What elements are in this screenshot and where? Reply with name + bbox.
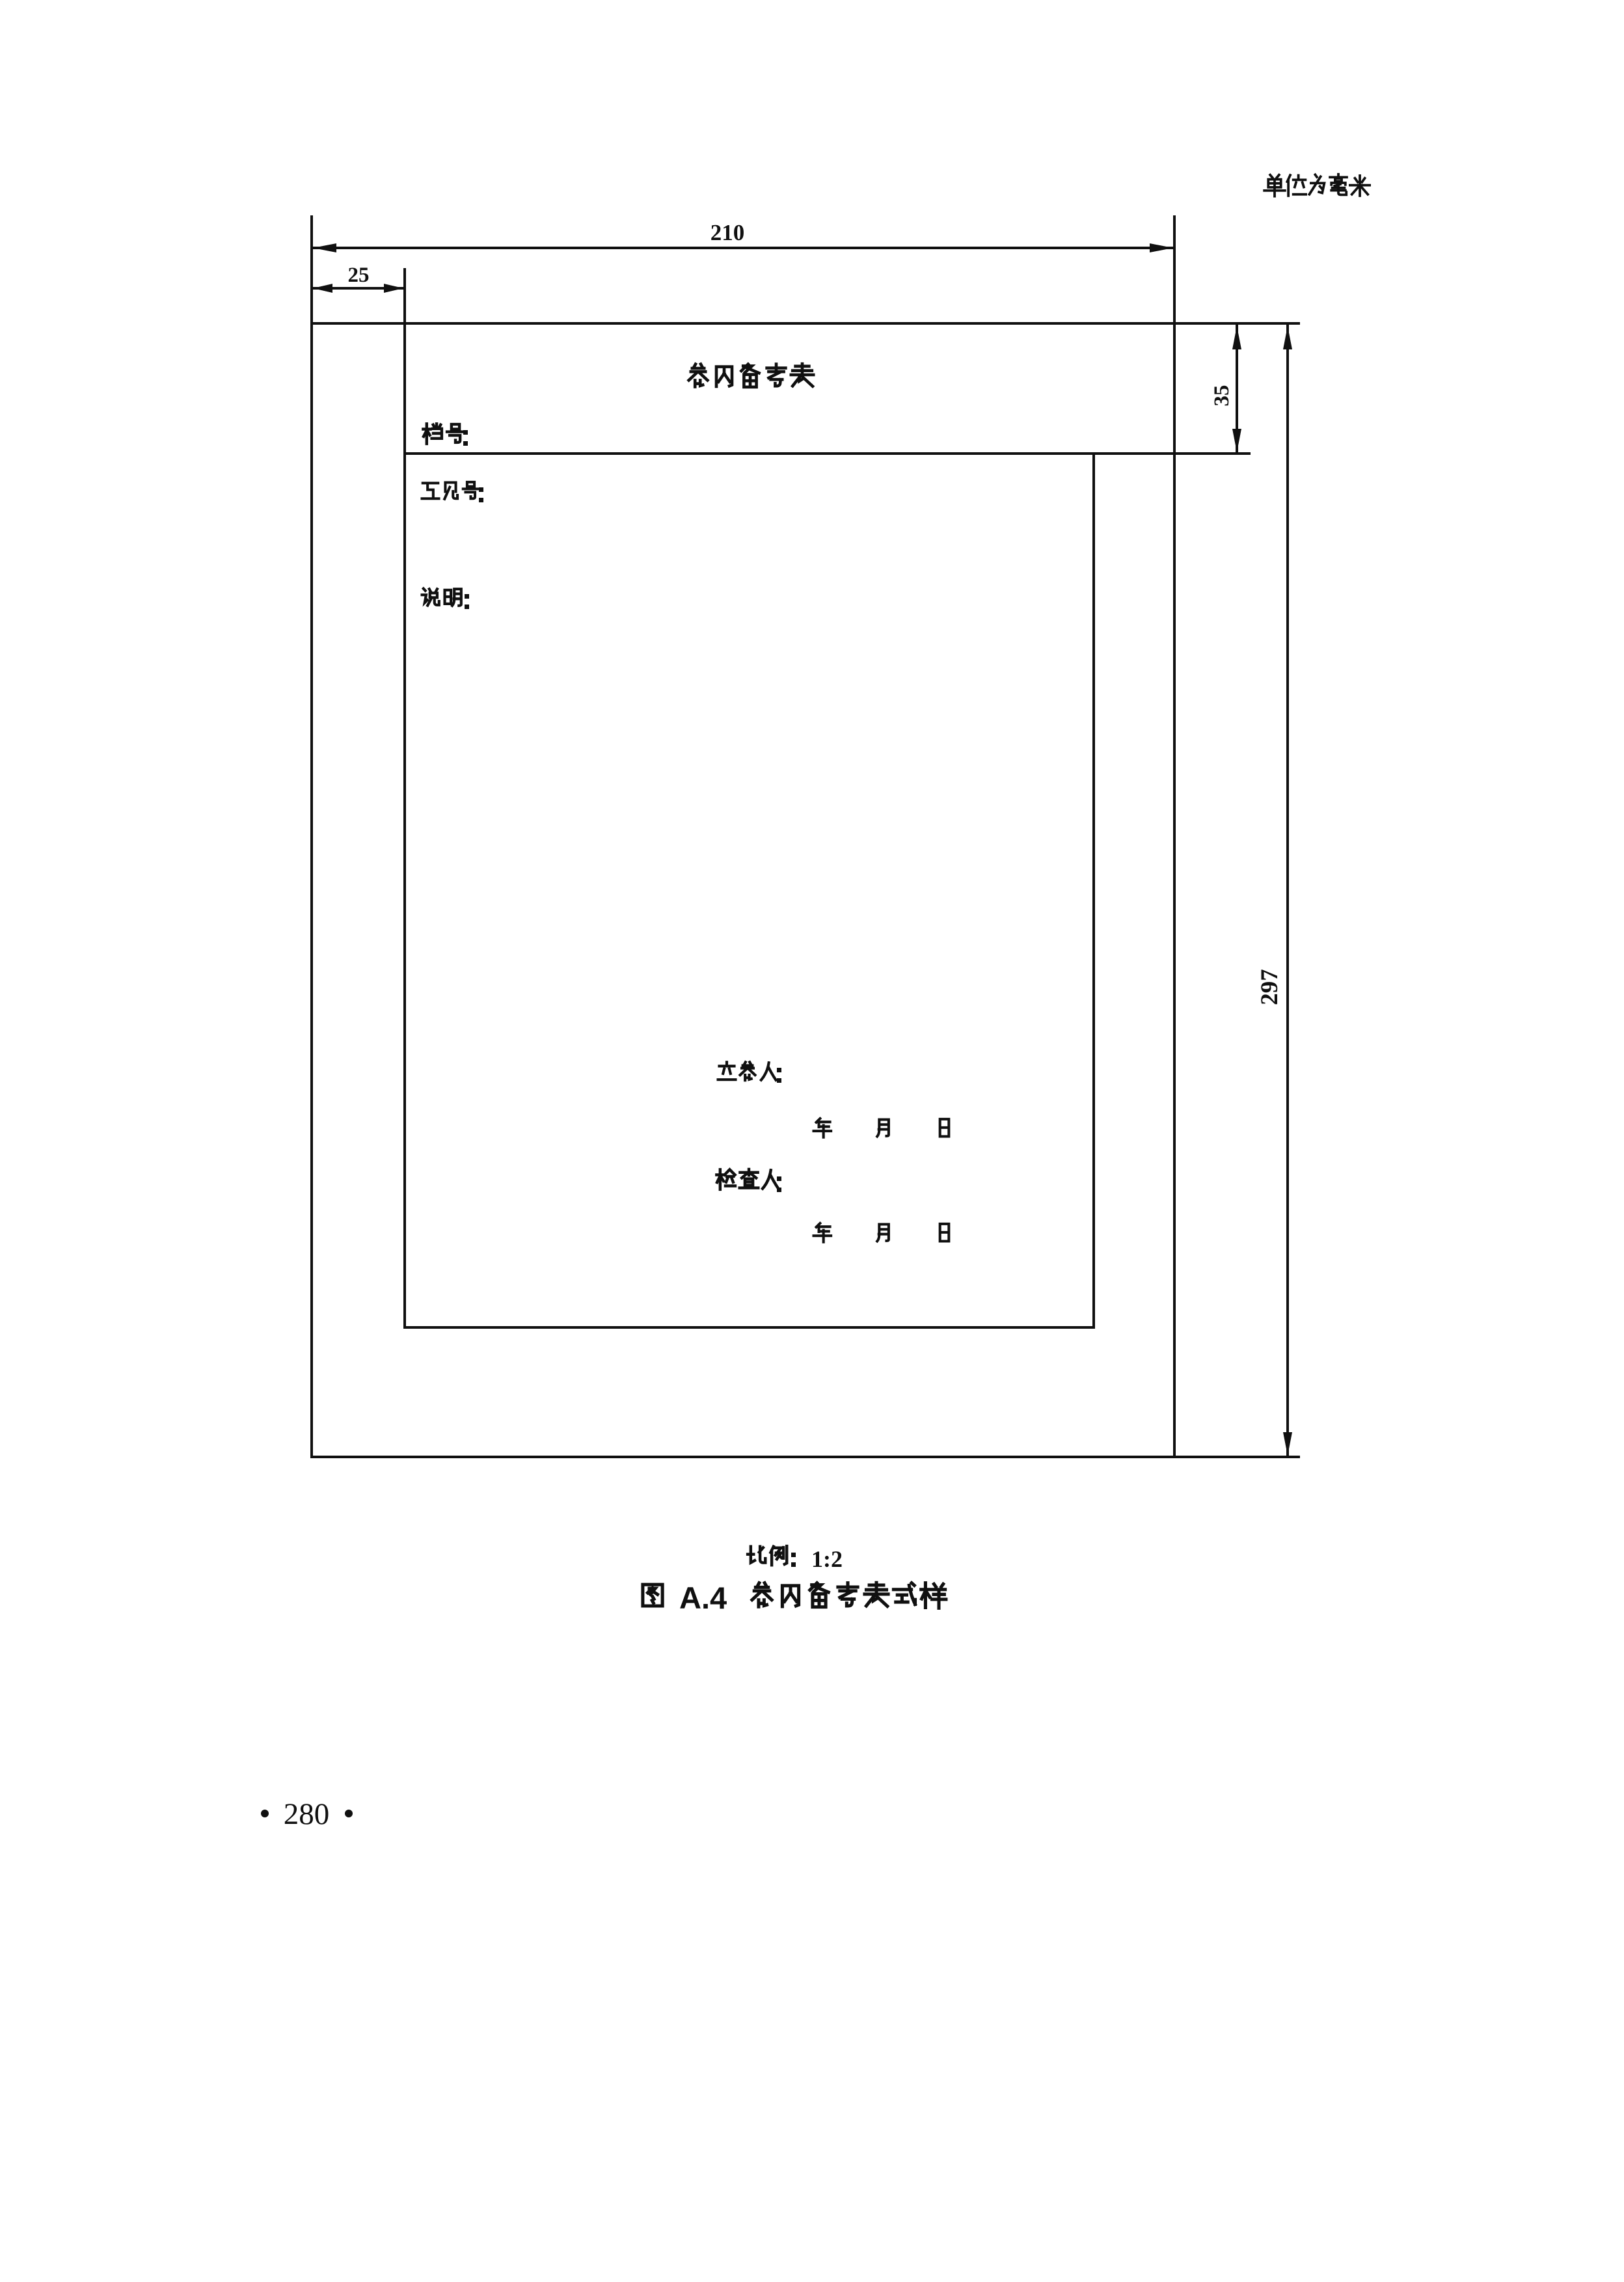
svg-text:35: 35	[1210, 385, 1234, 407]
svg-text:A.4: A.4	[679, 1581, 727, 1615]
svg-text:210: 210	[710, 220, 745, 245]
svg-text:280: 280	[284, 1797, 330, 1831]
svg-text:1:2: 1:2	[811, 1546, 843, 1572]
svg-text:25: 25	[348, 264, 370, 287]
svg-text:297: 297	[1256, 969, 1283, 1005]
